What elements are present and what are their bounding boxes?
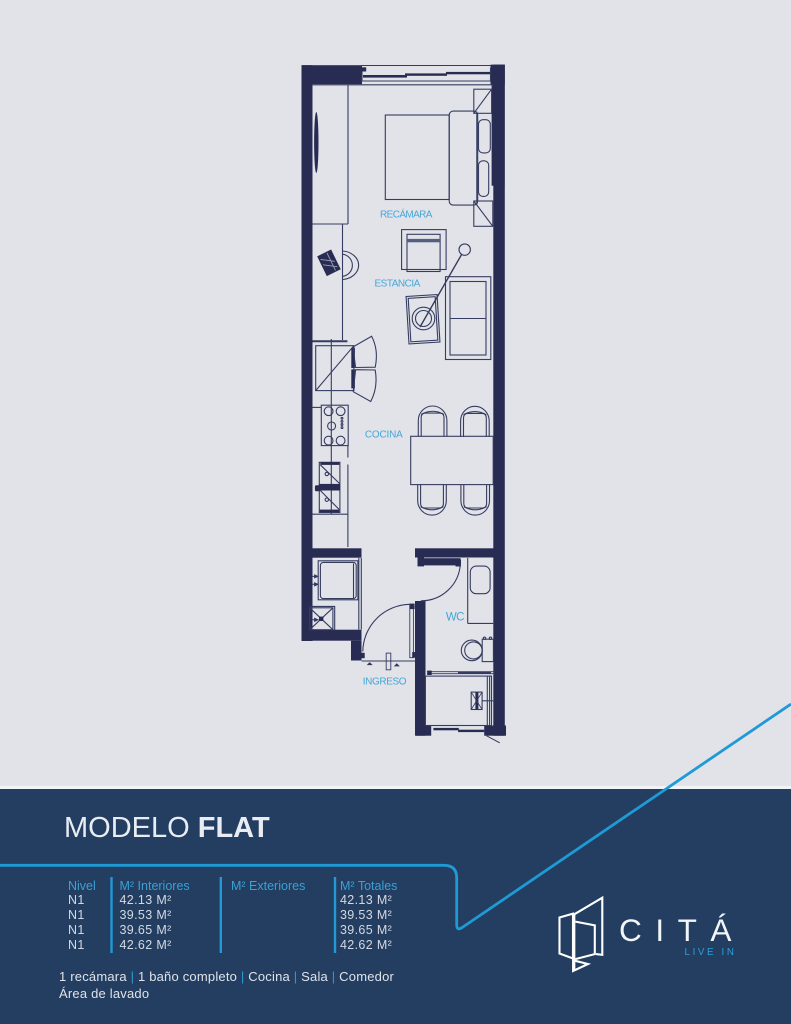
svg-text:RECÁMARA: RECÁMARA: [380, 207, 433, 220]
svg-text:WC: WC: [446, 612, 464, 624]
svg-text:INGRESO: INGRESO: [363, 676, 407, 687]
svg-text:COCINA: COCINA: [365, 429, 403, 440]
svg-text:ESTANCIA: ESTANCIA: [375, 279, 421, 290]
